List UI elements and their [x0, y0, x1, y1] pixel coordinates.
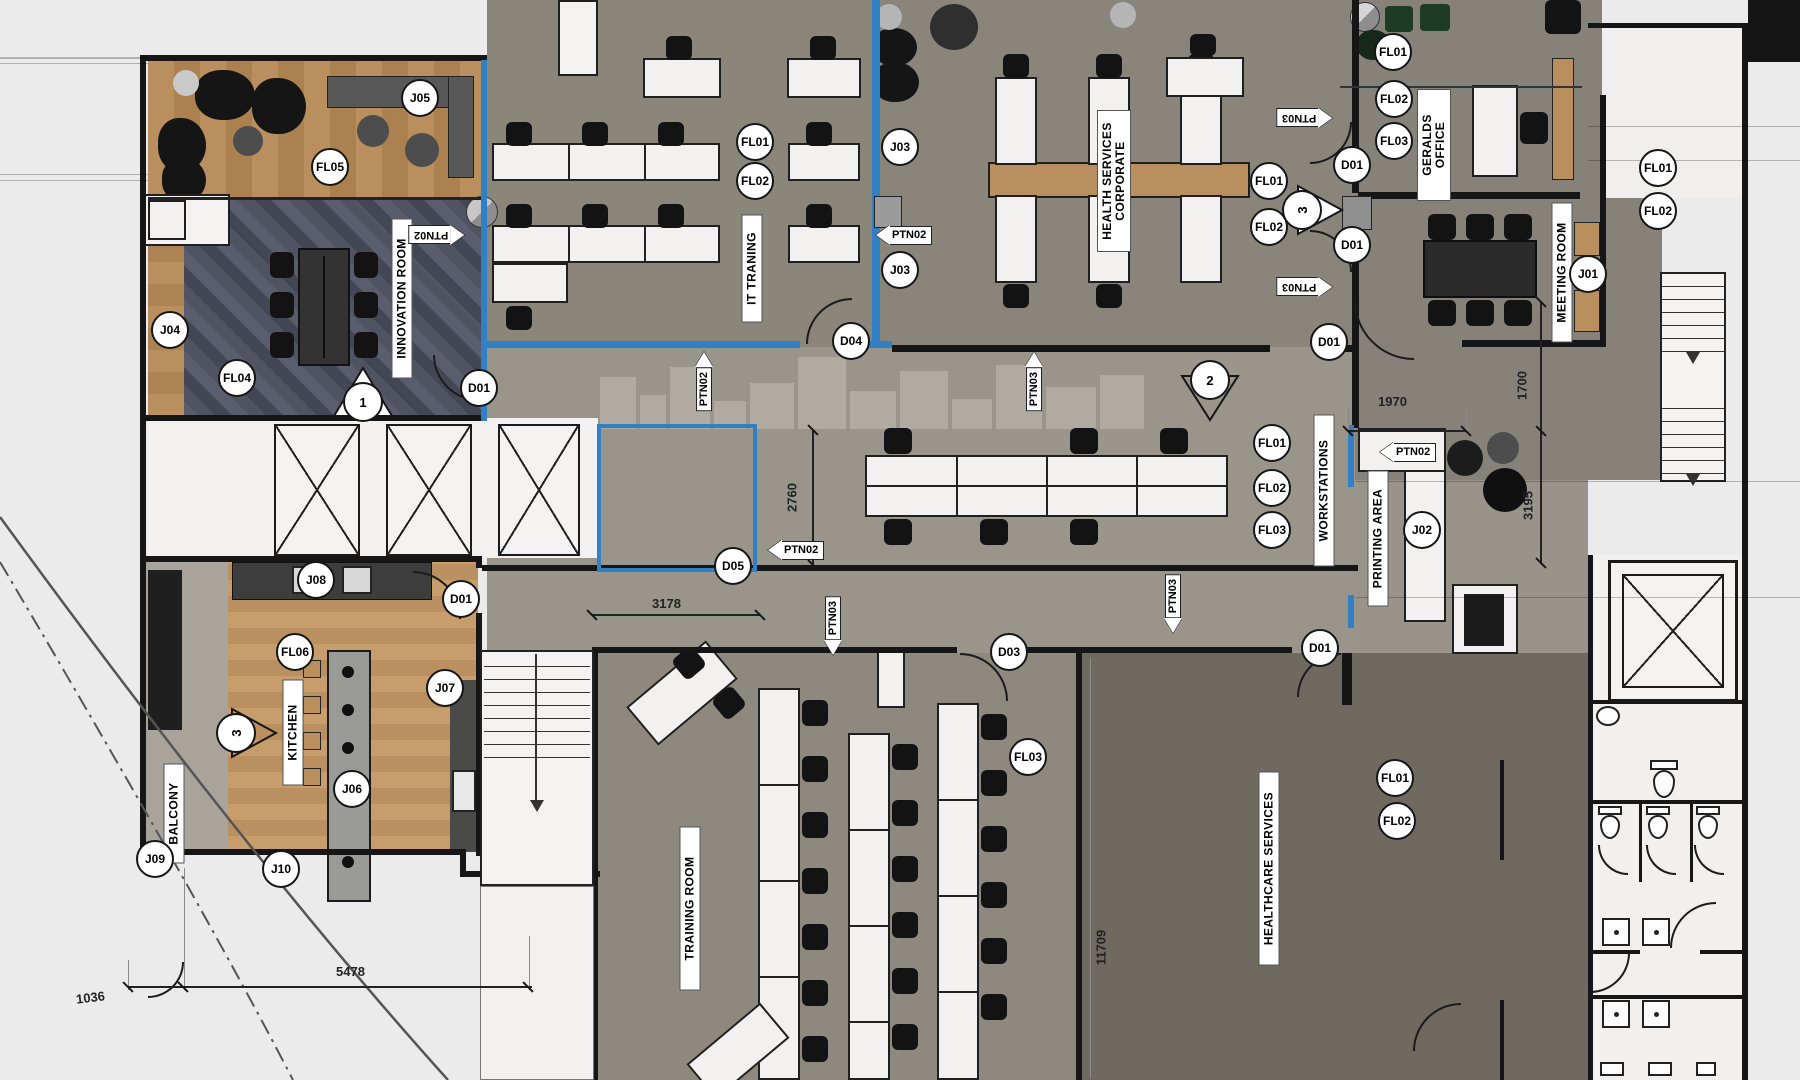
dim-1970: 1970 [1378, 394, 1407, 409]
tag-label: PTN02 [782, 541, 824, 560]
arrow-icon [1380, 442, 1394, 462]
callout-fl02: FL02 [736, 162, 774, 200]
dim-extension [529, 936, 530, 990]
desk [788, 225, 860, 263]
grid-line [0, 180, 148, 181]
wall [140, 415, 487, 421]
dim-5478: 5478 [336, 964, 365, 979]
room-healthcare-floor [1082, 653, 1588, 1080]
grid-line [1588, 160, 1800, 161]
callout-j05: J05 [401, 79, 439, 117]
dim-extension [1090, 658, 1091, 1078]
tag-label: PTN03 [1026, 367, 1042, 411]
tag-ptn02-d05: PTN02 [768, 540, 824, 560]
callout-d01: D01 [460, 369, 498, 407]
chair [892, 1024, 918, 1050]
dim-line [592, 614, 760, 616]
chair [354, 332, 378, 358]
wall [1742, 23, 1748, 1080]
arrow-icon [1318, 277, 1332, 297]
innovation-table-line [323, 256, 325, 358]
chair [506, 122, 532, 146]
desk [492, 263, 568, 303]
chair [981, 826, 1007, 852]
toilet-tank-icon [1646, 806, 1670, 815]
plant-chair-green [1385, 6, 1413, 32]
chair [666, 36, 692, 60]
copier [1464, 594, 1504, 646]
plant [1487, 432, 1519, 464]
callout-fl02: FL02 [1378, 802, 1416, 840]
callout-fl02: FL02 [1375, 80, 1413, 118]
chair [981, 938, 1007, 964]
section-marker-1: 1 [328, 366, 398, 442]
chair [1428, 300, 1456, 326]
callout-fl01: FL01 [736, 123, 774, 161]
wall [1588, 995, 1742, 999]
dim-1700: 1700 [1515, 356, 1530, 416]
chair [1190, 34, 1216, 56]
wall [1352, 345, 1359, 428]
chair [806, 204, 832, 228]
callout-fl02: FL02 [1639, 192, 1677, 230]
desk [995, 195, 1037, 283]
desk-divider [939, 991, 977, 993]
room-label-healthcare: HEALTHCARE SERVICES [1259, 772, 1280, 966]
stall-partition [1690, 804, 1693, 882]
chair [892, 912, 918, 938]
chair [506, 204, 532, 228]
callout-j10: J10 [262, 850, 300, 888]
arrow-icon [1164, 618, 1182, 633]
callout-d01: D01 [442, 580, 480, 618]
callout-j04: J04 [151, 311, 189, 349]
toilet-tank-icon [1650, 760, 1678, 770]
wall [140, 55, 487, 61]
grid-line [0, 57, 148, 59]
chair [981, 770, 1007, 796]
chair [981, 882, 1007, 908]
chair [1096, 284, 1122, 308]
stair-arrow-icon [1686, 352, 1700, 364]
grid-line [0, 63, 148, 64]
chair [980, 519, 1008, 545]
room-meeting-east-floor [1600, 197, 1662, 480]
callout-fl01: FL01 [1253, 424, 1291, 462]
wall [1700, 950, 1742, 954]
chair [1520, 112, 1548, 144]
wall [593, 647, 957, 653]
terrace-chair [357, 115, 389, 147]
desk-divider [850, 925, 888, 927]
sink-drain [1614, 1012, 1619, 1017]
section-marker-3-kitchen: 3 [214, 705, 280, 761]
arrow-icon [876, 225, 890, 245]
stair-treads [1662, 396, 1724, 474]
callout-fl01: FL01 [1376, 759, 1414, 797]
desk-divider [644, 145, 646, 179]
chair [802, 812, 828, 838]
stair-treads [1662, 274, 1724, 352]
chair [810, 36, 836, 60]
tag-ptn03-healthcare: PTN03 [1162, 574, 1184, 633]
glass-partition [1348, 595, 1354, 628]
callout-j01: J01 [1569, 255, 1607, 293]
callout-fl01: FL01 [1639, 149, 1677, 187]
callout-j07: J07 [426, 669, 464, 707]
section-marker-2: 2 [1178, 358, 1242, 422]
desk-divider [939, 799, 977, 801]
sink-drain [1654, 1012, 1659, 1017]
wall [1358, 192, 1580, 199]
callout-j06: J06 [333, 770, 371, 808]
section-marker-3-health: 3 [1282, 182, 1346, 238]
wall [1012, 647, 1292, 653]
section-number: 3 [1282, 190, 1322, 230]
callout-j09: J09 [136, 840, 174, 878]
tag-label: PTN02 [1394, 443, 1436, 462]
plant [930, 4, 978, 50]
meeting-table [1423, 240, 1537, 298]
desk-divider [760, 880, 798, 882]
tag-ptn02-innovation: PTN02 [408, 225, 464, 245]
room-label-health-corporate: HEALTH SERVICES CORPORATE [1097, 110, 1131, 252]
section-number: 2 [1190, 360, 1230, 400]
credenza-wood [1552, 58, 1574, 180]
grid-line [0, 174, 148, 175]
desk [1166, 57, 1244, 97]
callout-fl03: FL03 [1253, 511, 1291, 549]
credenza-wood [1574, 290, 1600, 332]
terrace-chair [233, 126, 263, 156]
callout-d01: D01 [1301, 629, 1339, 667]
training-desk-col [848, 733, 890, 1080]
callout-j02: J02 [1403, 511, 1441, 549]
arrow-icon [695, 352, 713, 367]
grid-line-dark [1340, 86, 1582, 88]
callout-fl04: FL04 [218, 359, 256, 397]
callout-d05: D05 [714, 547, 752, 585]
wall [1076, 647, 1082, 1080]
wall [1500, 760, 1504, 860]
callout-fl01: FL01 [1374, 33, 1412, 71]
table-dark [1748, 0, 1800, 62]
wall [1588, 23, 1748, 28]
desk [1180, 195, 1222, 283]
chair [1070, 428, 1098, 454]
grid-line [1588, 126, 1800, 127]
tag-label: PTN03 [1165, 574, 1181, 618]
wall [1500, 1000, 1504, 1080]
section-number: 1 [343, 382, 383, 422]
chair [1003, 284, 1029, 308]
desk-divider [568, 145, 570, 179]
room-label-kitchen: KITCHEN [283, 680, 304, 786]
tag-label: PTN02 [408, 226, 450, 245]
section-number: 3 [216, 713, 256, 753]
terrace-bench [448, 76, 474, 178]
arrow-icon [1025, 352, 1043, 367]
chair [981, 994, 1007, 1020]
wall [1588, 555, 1593, 1080]
callout-d04: D04 [832, 322, 870, 360]
chair [658, 122, 684, 146]
chair [1003, 54, 1029, 78]
arrow-icon [768, 540, 782, 560]
chair [1466, 214, 1494, 240]
chair [802, 756, 828, 782]
toilet-tank-icon [1696, 1062, 1716, 1076]
arrow-icon [824, 640, 842, 655]
stair-arrow-icon [1686, 474, 1700, 486]
plant-chair-green [1420, 4, 1450, 31]
wall-line [148, 197, 484, 200]
chair [892, 856, 918, 882]
room-label-geralds-office: GERALDS OFFICE [1417, 89, 1451, 201]
wall [1588, 800, 1742, 804]
room-label-workstations: WORKSTATIONS [1314, 415, 1335, 567]
sink-drain [1614, 930, 1619, 935]
callout-j03: J03 [881, 128, 919, 166]
chair [1504, 214, 1532, 240]
toilet-tank-icon [1648, 1062, 1672, 1076]
chair [806, 122, 832, 146]
bench-divider [1046, 457, 1048, 515]
chair [1504, 300, 1532, 326]
dim-2760: 2760 [785, 468, 800, 528]
glass-partition [481, 60, 487, 421]
desk-divider [850, 829, 888, 831]
dim-line [1348, 430, 1466, 432]
wall [1342, 653, 1352, 705]
floor-plan: 5478 1036 3178 2760 1970 1700 3195 11709… [0, 0, 1800, 1080]
chair [354, 292, 378, 318]
callout-fl02: FL02 [1253, 469, 1291, 507]
training-desk-col [937, 703, 979, 1080]
desk [788, 143, 860, 181]
room-label-it-training: IT TRANING [742, 215, 763, 323]
chair [802, 868, 828, 894]
dim-extension [184, 868, 185, 990]
bench-divider [956, 457, 958, 515]
callout-j08: J08 [297, 561, 335, 599]
plant [195, 70, 255, 120]
chair [582, 204, 608, 228]
storage-closet-inner [148, 200, 186, 240]
desk-divider [644, 227, 646, 261]
chair [892, 800, 918, 826]
toilet-tank-icon [1696, 806, 1720, 815]
plant [252, 78, 306, 134]
wall [892, 345, 1270, 352]
wall-column [558, 0, 598, 76]
desk-divider [939, 895, 977, 897]
column-marker [1110, 2, 1136, 28]
acoustic-skyline-decor [600, 347, 1148, 429]
chair [892, 968, 918, 994]
tag-ptn03-corridor: PTN03 [1023, 352, 1045, 411]
callout-fl03: FL03 [1375, 122, 1413, 160]
desk [643, 58, 721, 98]
desk-divider [568, 227, 570, 261]
desk-row [492, 225, 720, 263]
credenza-wood [1574, 222, 1600, 256]
chair [802, 924, 828, 950]
grid-line [1356, 597, 1800, 598]
stall-partition [1639, 804, 1642, 882]
tag-label: PTN03 [1276, 278, 1318, 297]
glass-partition [872, 0, 880, 347]
plant [1447, 440, 1483, 476]
tag-label: PTN02 [696, 367, 712, 411]
wall [1462, 340, 1606, 347]
tag-ptn02-it: PTN02 [876, 225, 932, 245]
elevator-shaft [1622, 574, 1724, 688]
desk-divider [850, 1021, 888, 1023]
chair [270, 252, 294, 278]
chair [1545, 0, 1581, 34]
arrow-icon [450, 225, 464, 245]
chair [802, 700, 828, 726]
desk [787, 58, 861, 98]
chair [658, 204, 684, 228]
chair [582, 122, 608, 146]
chair [884, 428, 912, 454]
callout-fl05: FL05 [311, 148, 349, 186]
tag-ptn03-geralds-bottom: PTN03 [1276, 277, 1332, 297]
dim-3195: 3195 [1521, 476, 1536, 536]
terrace-table [173, 70, 199, 96]
chair [1160, 428, 1188, 454]
room-label-training: TRAINING ROOM [680, 827, 701, 991]
arrow-icon [1318, 108, 1332, 128]
chair [1070, 519, 1098, 545]
door-leaf [874, 196, 902, 228]
chair [354, 252, 378, 278]
glass-partition [482, 341, 800, 348]
sink-drain [1654, 930, 1659, 935]
chair [802, 980, 828, 1006]
chair [802, 1036, 828, 1062]
accessible-sink-icon [1596, 706, 1620, 726]
toilet-tank-icon [1598, 806, 1622, 815]
tag-ptn02-printing: PTN02 [1380, 442, 1436, 462]
callout-d01: D01 [1310, 323, 1348, 361]
chair [270, 292, 294, 318]
chair [1466, 300, 1494, 326]
tag-ptn03-geralds-top: PTN03 [1276, 108, 1332, 128]
callout-d03: D03 [990, 633, 1028, 671]
desk [1472, 85, 1518, 177]
tag-ptn02-corridor: PTN02 [693, 352, 715, 411]
chair [506, 306, 532, 330]
terrace-chair [405, 133, 439, 167]
door-leaf [1342, 196, 1372, 230]
desk-row [492, 143, 720, 181]
toilet-tank-icon [1600, 1062, 1624, 1076]
bench-divider [1136, 457, 1138, 515]
lectern [877, 650, 905, 708]
dim-3178: 3178 [652, 596, 681, 611]
wall [1600, 95, 1606, 347]
callout-fl03: FL03 [1009, 738, 1047, 776]
desk [995, 77, 1037, 165]
chair [270, 332, 294, 358]
grid-line [1356, 481, 1800, 482]
desk-divider [760, 976, 798, 978]
callout-fl06: FL06 [276, 633, 314, 671]
chair [1428, 214, 1456, 240]
dim-11709: 11709 [1094, 913, 1109, 983]
tag-label: PTN02 [890, 226, 932, 245]
callout-d01: D01 [1333, 146, 1371, 184]
chair [981, 714, 1007, 740]
chair [1096, 54, 1122, 78]
tag-label: PTN03 [1276, 109, 1318, 128]
desk-divider [760, 784, 798, 786]
tag-ptn03-training: PTN03 [822, 596, 844, 655]
dim-line [128, 986, 532, 988]
tag-label: PTN03 [825, 596, 841, 640]
chair [892, 744, 918, 770]
chair [884, 519, 912, 545]
room-label-printing-area: PRINTING AREA [1368, 471, 1389, 607]
callout-j03: J03 [881, 251, 919, 289]
